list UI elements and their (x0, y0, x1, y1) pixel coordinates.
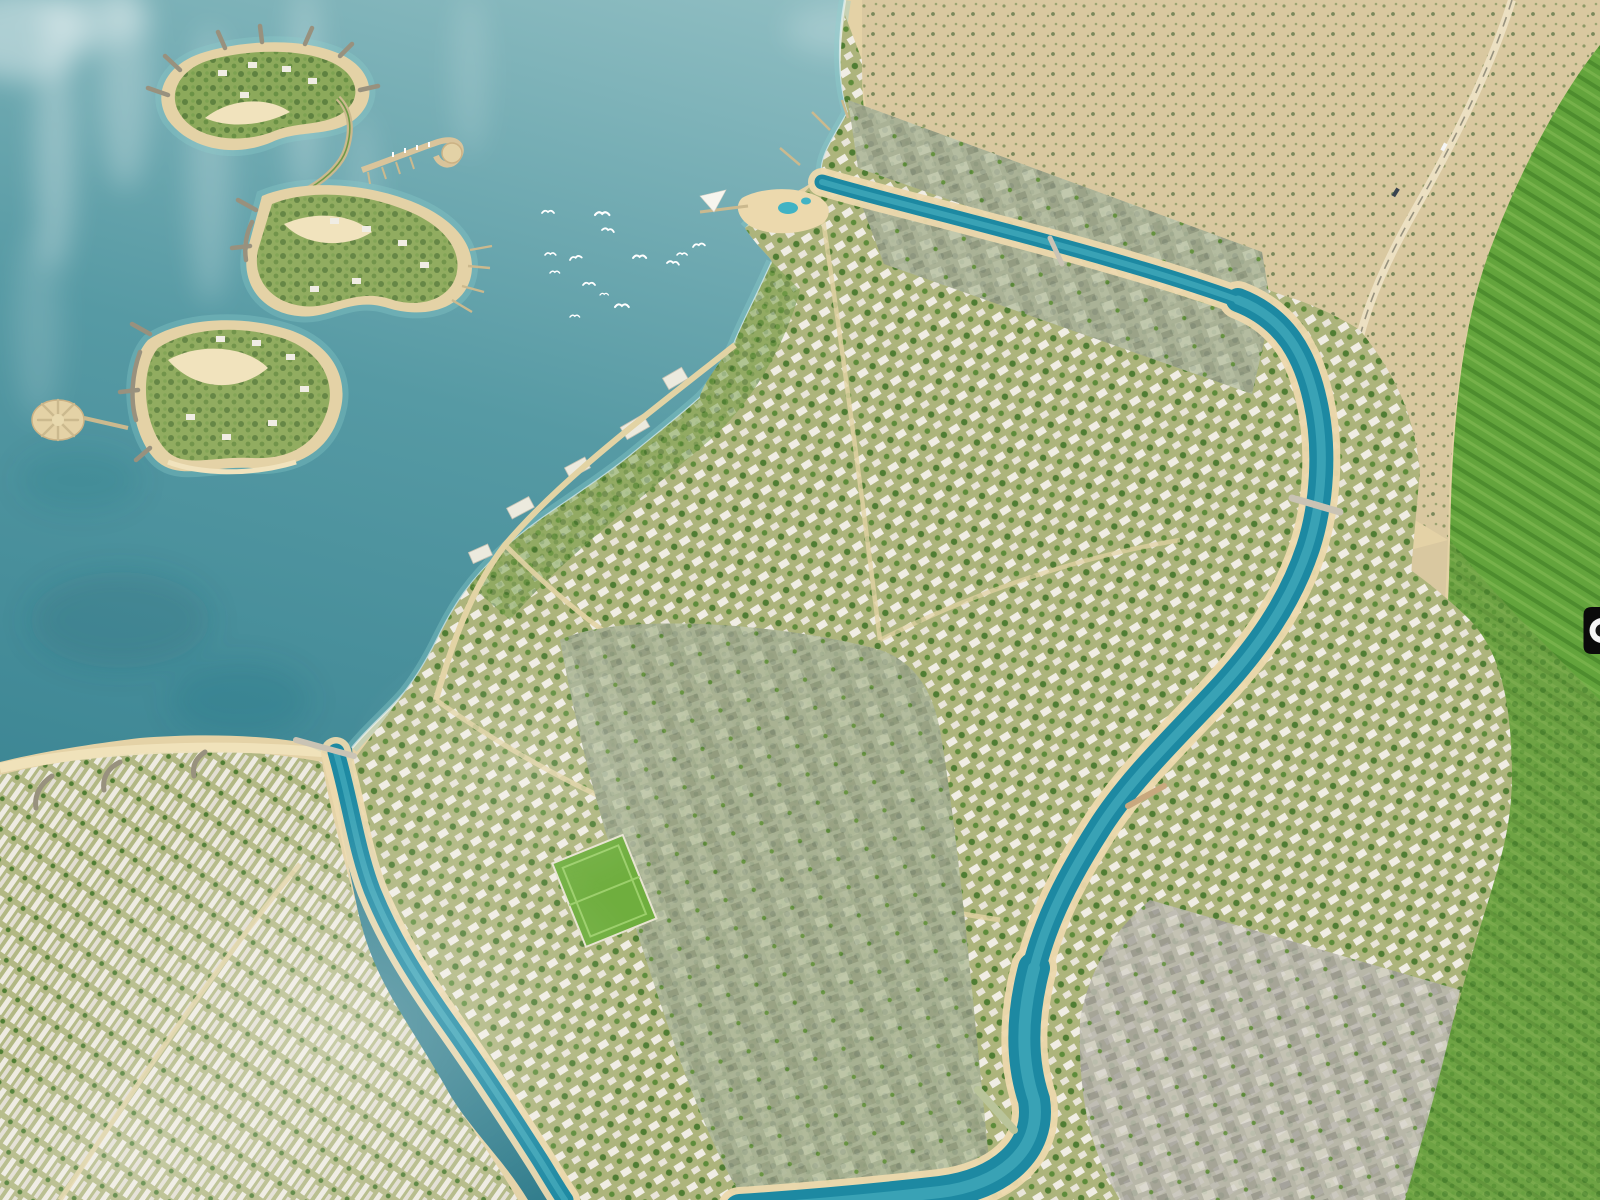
scene-canvas (0, 0, 1600, 1200)
aerial-render (0, 0, 1600, 1200)
island-south (120, 320, 343, 471)
overlay-button[interactable] (1584, 607, 1600, 654)
